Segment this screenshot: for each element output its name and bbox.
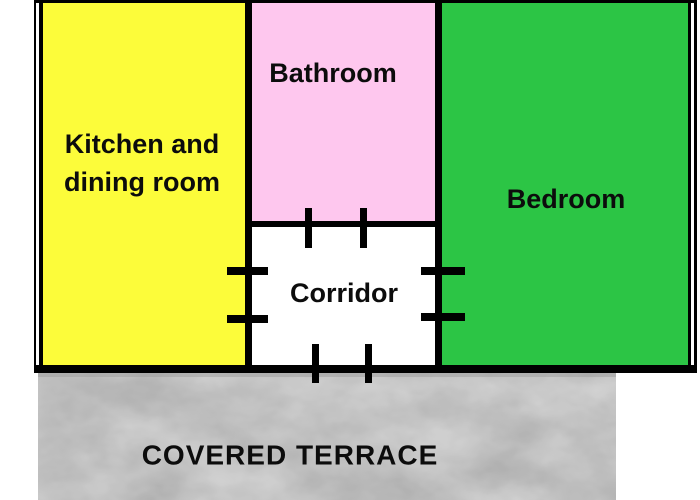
room-bathroom: [252, 3, 435, 221]
door-mark-corridor-bedroom-2: [421, 313, 465, 321]
room-label-corridor: Corridor: [290, 275, 398, 313]
door-mark-kitchen-corridor-1: [227, 267, 268, 275]
door-mark-corridor-terrace-2: [365, 344, 372, 383]
room-label-kitchen-line1: Kitchen and: [64, 126, 220, 164]
room-label-bathroom: Bathroom: [269, 55, 397, 93]
door-mark-bathroom-corridor-2: [360, 208, 367, 248]
room-label-covered-terrace: COVERED TERRACE: [142, 435, 439, 474]
room-label-bedroom: Bedroom: [507, 181, 626, 219]
door-mark-corridor-bedroom-1: [421, 267, 465, 275]
wall-bathroom-bottom: [245, 221, 442, 227]
room-label-kitchen-line2: dining room: [64, 164, 220, 202]
wall-kitchen-bathroom: [245, 0, 252, 369]
door-mark-bathroom-corridor-1: [305, 208, 312, 248]
room-label-kitchen: Kitchen and dining room: [64, 126, 220, 202]
door-mark-kitchen-corridor-2: [227, 315, 268, 323]
floor-plan: Kitchen and dining room Bathroom Bedroom…: [0, 0, 700, 500]
wall-left-outer: [34, 0, 36, 372]
wall-top: [34, 0, 697, 3]
door-mark-corridor-terrace-1: [312, 344, 319, 383]
wall-right-outer: [694, 0, 697, 372]
wall-kitchen-left: [39, 0, 43, 369]
wall-right-inner: [688, 0, 691, 372]
